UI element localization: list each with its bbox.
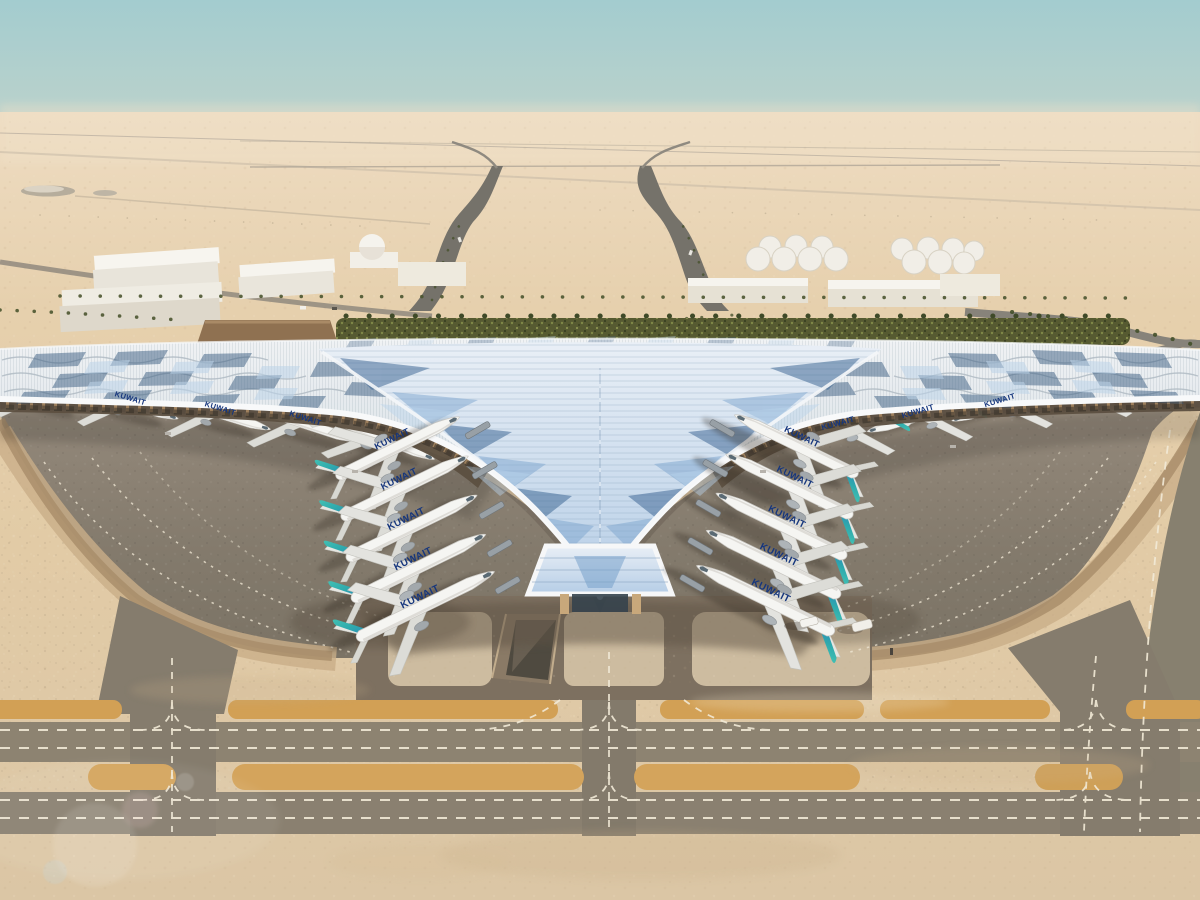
canopy-column [632, 594, 641, 614]
airport-rendering: KUWAIT KUWAIT KUWAIT KUWAIT KUWAIT KUWAI… [0, 0, 1200, 900]
canopy-column [560, 594, 569, 614]
entrance-glass [572, 594, 628, 612]
